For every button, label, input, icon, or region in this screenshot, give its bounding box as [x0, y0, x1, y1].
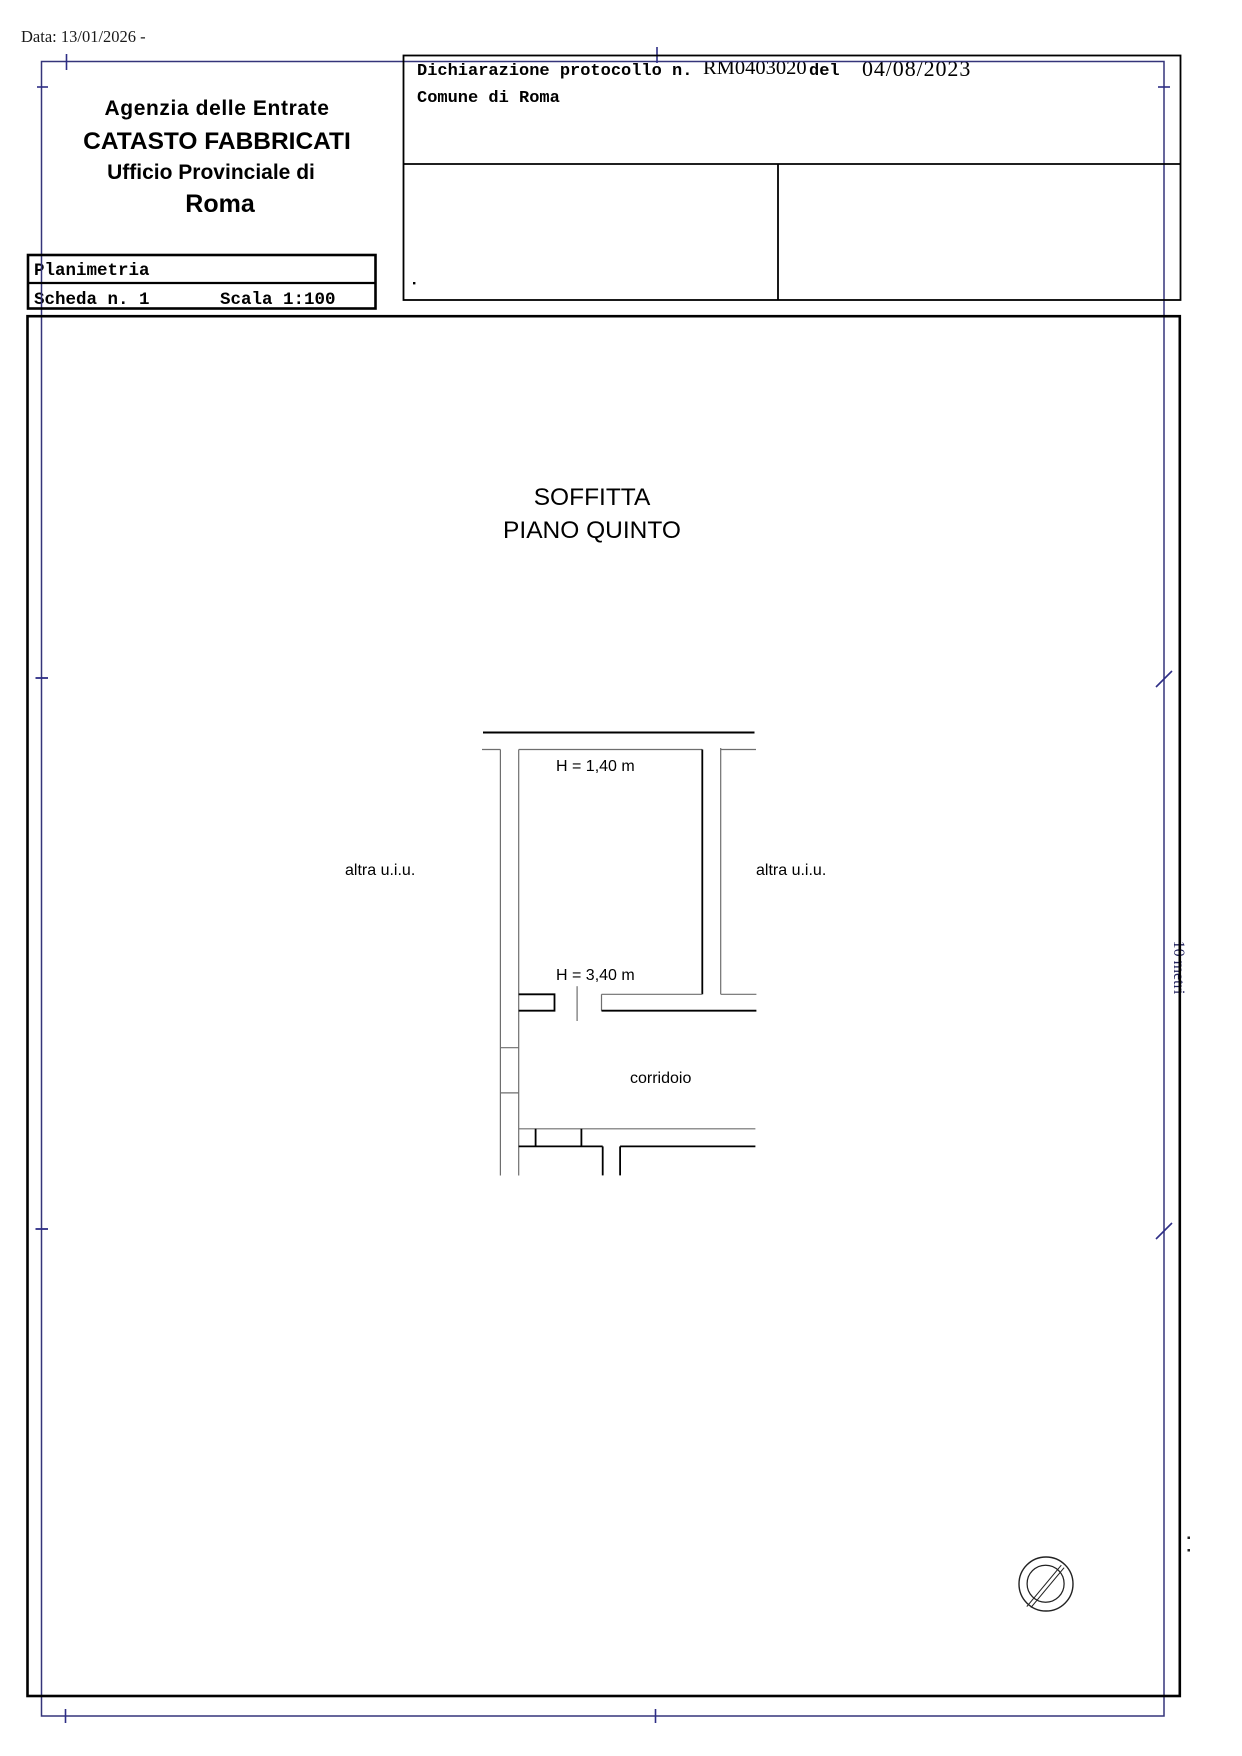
svg-text:10 metri: 10 metri	[1170, 941, 1187, 995]
